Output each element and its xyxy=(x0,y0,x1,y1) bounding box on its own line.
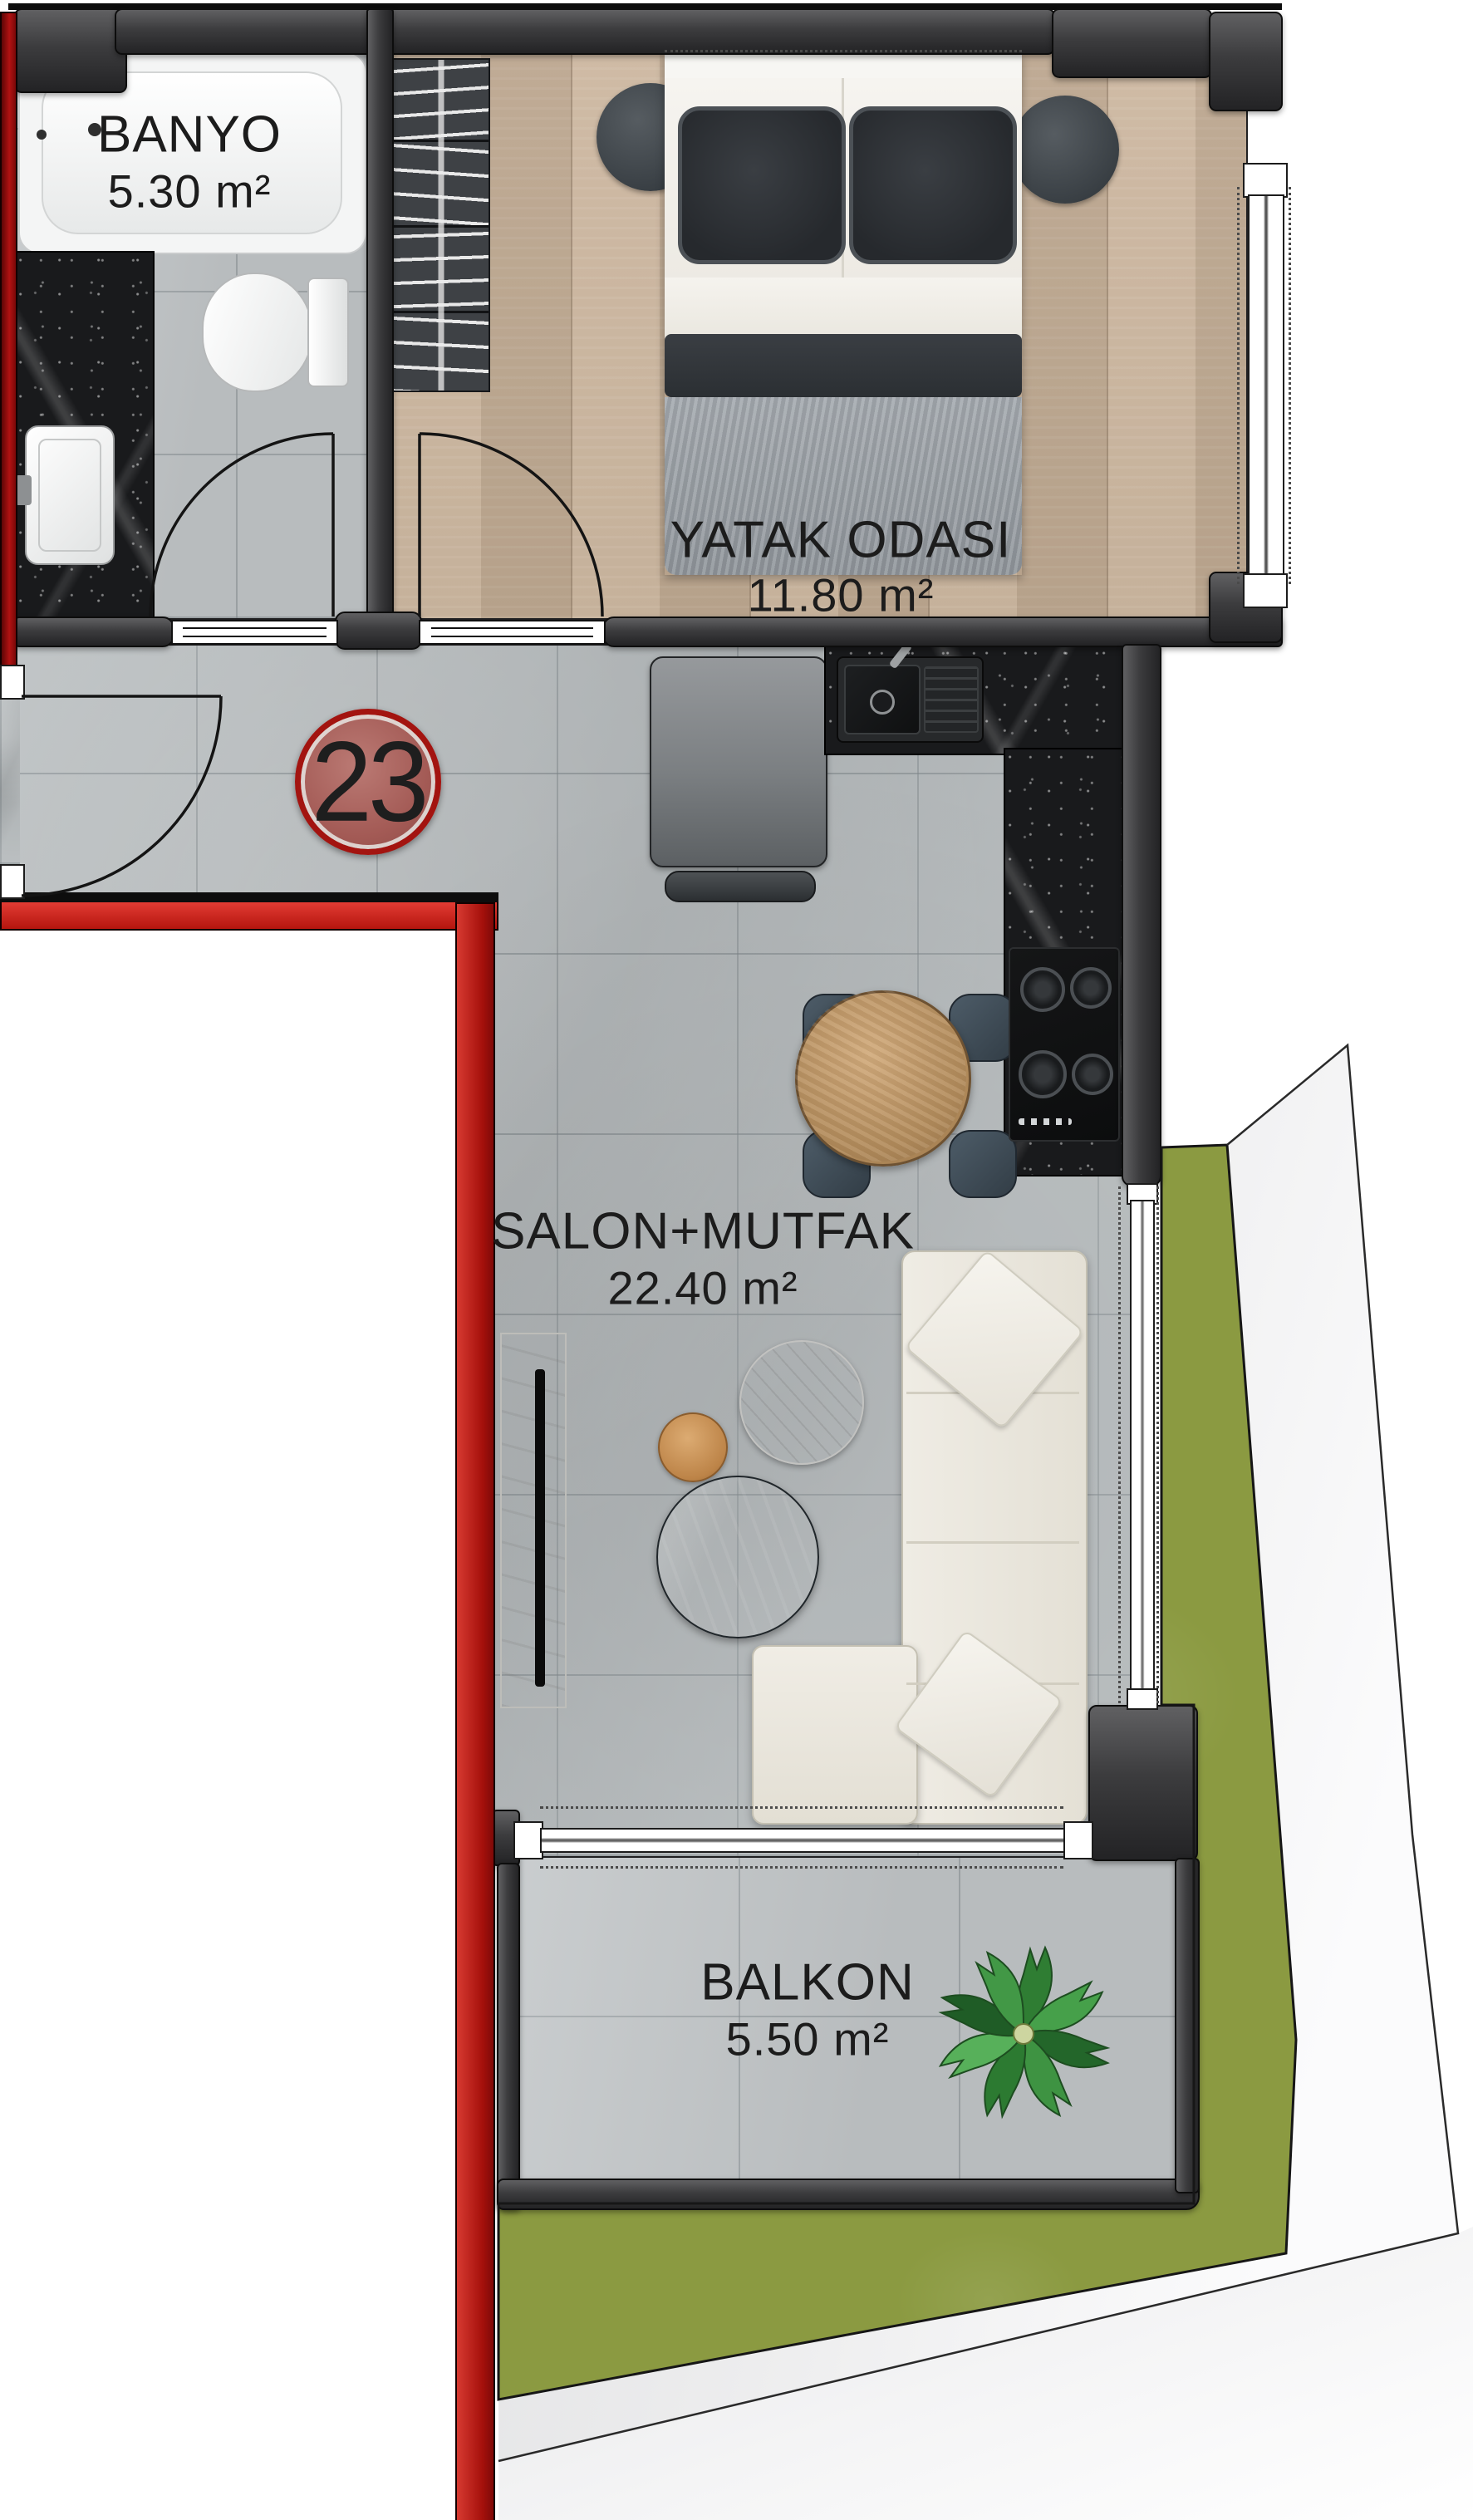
floor-edge-line xyxy=(0,892,498,902)
sink-drain-icon xyxy=(870,690,895,715)
wardrobe-section xyxy=(394,60,489,142)
coffee-table-wood xyxy=(658,1412,728,1482)
bed-pillow-right xyxy=(849,106,1017,264)
entry-door-frame-bottom xyxy=(0,864,25,899)
wall-pier-center xyxy=(335,612,422,650)
entry-door-frame-top xyxy=(0,665,25,700)
sofa-seam xyxy=(906,1541,1079,1544)
bedroom-window-cap-bottom xyxy=(1243,573,1288,608)
wardrobe-section xyxy=(394,311,489,391)
entry-door-floor-patch xyxy=(0,696,20,864)
sliding-door-cap-right xyxy=(1063,1821,1093,1859)
vanity-sink xyxy=(25,425,115,565)
sliding-door-dotted-bottom xyxy=(540,1866,1063,1869)
bedroom-window-cap-top xyxy=(1243,163,1288,198)
refrigerator-handle xyxy=(665,871,816,902)
sink-drainboard xyxy=(924,666,979,733)
sofa-l-shaped xyxy=(752,1250,1084,1821)
exterior-cutout xyxy=(0,902,455,2520)
tv-unit xyxy=(500,1333,567,1708)
living-railing-cap-bottom xyxy=(1127,1688,1158,1710)
tv-screen xyxy=(535,1369,545,1687)
bedside-rug-right xyxy=(1011,96,1119,204)
wardrobe-section xyxy=(394,140,489,228)
kitchen-sink xyxy=(837,656,984,743)
wall-band-left xyxy=(14,616,174,647)
toilet-bowl xyxy=(202,273,313,392)
room-label-banyo: BANYO xyxy=(97,106,282,165)
wall-pier-balcony-right xyxy=(1088,1705,1198,1861)
door-threshold-bedroom xyxy=(419,620,606,645)
burner-icon xyxy=(1072,1054,1113,1095)
living-railing-dotted-inner xyxy=(1118,1186,1121,1703)
room-area-salon-mutfak: 22.40 m² xyxy=(608,1261,798,1315)
dining-table-grain xyxy=(795,990,966,1162)
vanity-faucet-icon xyxy=(15,475,32,505)
wall-balcony-bottom xyxy=(497,2179,1200,2210)
double-bed xyxy=(665,53,1022,575)
sliding-door-dotted-top xyxy=(540,1806,1063,1809)
room-area-yatak-odasi: 11.80 m² xyxy=(748,568,935,622)
bed-headboard xyxy=(665,53,1022,80)
bed-duvet-dark-band xyxy=(665,334,1022,397)
wall-kitchen-right xyxy=(1122,644,1161,1186)
unit-number: 23 xyxy=(312,725,425,838)
toilet-tank xyxy=(307,278,349,387)
room-label-yatak-odasi: YATAK ODASI xyxy=(670,511,1012,570)
bedroom-window xyxy=(1248,194,1284,577)
wall-balcony-right xyxy=(1175,1858,1200,2193)
sliding-door-cap-left xyxy=(513,1821,543,1859)
bedroom-window-dotted-outer xyxy=(1289,187,1291,584)
sofa-chaise xyxy=(752,1645,918,1825)
burner-icon xyxy=(1020,967,1065,1012)
living-railing-dotted-outer xyxy=(1156,1186,1159,1703)
bathtub-drain-icon xyxy=(37,130,47,140)
wardrobe-section xyxy=(394,225,489,313)
wall-corner-top-right xyxy=(1209,12,1283,111)
burner-icon xyxy=(1070,967,1112,1009)
cooktop xyxy=(1009,947,1120,1142)
wall-top-b xyxy=(1052,8,1212,78)
bedroom-window-dotted-inner xyxy=(1237,187,1240,584)
dining-chair xyxy=(949,1130,1017,1198)
wall-shaft-top-left xyxy=(14,8,127,93)
unit-number-badge: 23 xyxy=(295,709,441,855)
cooktop-knobs xyxy=(1019,1118,1072,1125)
party-wall-red-bottom-vertical xyxy=(455,902,495,2520)
door-threshold-bathroom xyxy=(171,620,338,645)
bed-headboard-dotted-line xyxy=(665,50,1022,52)
wall-bathroom-bedroom-divider xyxy=(366,8,394,643)
party-wall-red-bottom-horizontal xyxy=(0,902,498,931)
room-area-banyo: 5.30 m² xyxy=(108,165,272,219)
floor-plan: 23 BANYO 5.30 m² YATAK ODASI 11.80 m² SA… xyxy=(0,0,1473,2520)
living-railing xyxy=(1130,1200,1155,1693)
wall-band-right xyxy=(602,616,1283,647)
room-label-salon-mutfak: SALON+MUTFAK xyxy=(491,1202,915,1261)
wardrobe xyxy=(392,58,490,392)
burner-icon xyxy=(1019,1050,1067,1098)
wall-top-a xyxy=(115,8,1055,55)
sliding-door xyxy=(540,1828,1067,1853)
refrigerator xyxy=(650,656,827,867)
wall-balcony-left xyxy=(497,1863,520,2210)
bed-pillow-left xyxy=(678,106,846,264)
party-wall-red-left xyxy=(0,12,17,668)
room-area-balkon: 5.50 m² xyxy=(726,2012,890,2066)
vanity-sink-basin xyxy=(38,439,101,552)
room-label-balkon: BALKON xyxy=(700,1953,915,2012)
